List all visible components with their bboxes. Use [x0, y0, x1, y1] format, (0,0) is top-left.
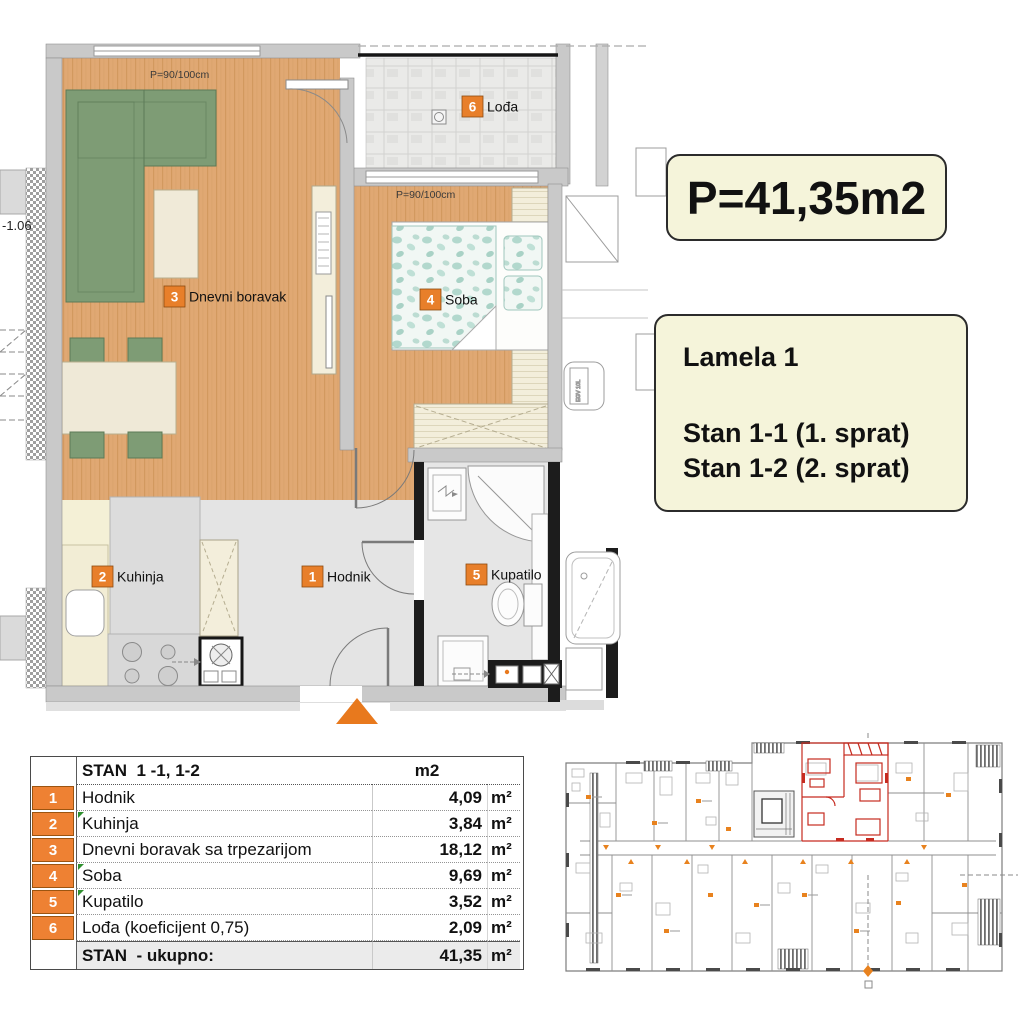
heater-label: EGV 10L: [576, 380, 582, 402]
pillow: [504, 276, 542, 310]
total-unit: m²: [487, 941, 520, 969]
row-value: 18,12: [372, 837, 487, 863]
row-name: Soba: [76, 863, 372, 889]
room-badge-kuhinja: 2 Kuhinja: [92, 566, 164, 587]
row-value: 3,84: [372, 811, 487, 837]
building-label: Lamela 1: [683, 342, 966, 373]
stair-core: [754, 791, 794, 837]
neighbor-bathtub: [566, 552, 620, 644]
dresser: [414, 404, 548, 450]
row-unit: m²: [487, 785, 520, 811]
pantry-cabinet: [200, 540, 238, 636]
row-badge: 3: [31, 837, 76, 863]
room-label: Kuhinja: [117, 569, 164, 585]
svg-text:5: 5: [473, 568, 481, 583]
row-name: Lođa (koeficijent 0,75): [76, 915, 372, 941]
svg-text:4: 4: [427, 293, 435, 308]
dining-chair: [128, 432, 162, 458]
kitchen-counter-block: [110, 497, 200, 634]
overview-plan: [556, 733, 1024, 1023]
room-badge-hodnik: 1 Hodnik: [302, 566, 372, 587]
site-context-left: -1.06: [0, 168, 46, 688]
room-badge-lodja: 6 Lođa: [462, 96, 518, 117]
floor-plan: -1.06: [0, 0, 670, 745]
bedroom-entry-floor: [354, 448, 414, 500]
coffee-table: [154, 190, 198, 278]
row-badge: 4: [31, 863, 76, 889]
table-header-badge: [31, 757, 76, 785]
row-badge: 1: [31, 785, 76, 811]
row-unit: m²: [487, 811, 520, 837]
tv-cabinet: [312, 186, 336, 374]
room-label: Kupatilo: [491, 567, 542, 583]
dining-chair: [128, 338, 162, 364]
total-area-label: P=41,35m2: [687, 171, 926, 225]
svg-text:1: 1: [309, 570, 317, 585]
room-badge-soba: 4 Soba: [420, 289, 478, 310]
unit-label-1: Stan 1-1 (1. sprat): [683, 416, 966, 451]
row-name: Hodnik: [76, 785, 372, 811]
room-badge-dnevni-boravak: 3 Dnevni boravak: [164, 286, 287, 307]
row-value: 2,09: [372, 915, 487, 941]
row-badge: 2: [31, 811, 76, 837]
overview-building: [566, 733, 1018, 988]
area-box: P=41,35m2: [666, 154, 947, 241]
row-value: 9,69: [372, 863, 487, 889]
svg-text:6: 6: [469, 100, 477, 115]
row-badge: 5: [31, 889, 76, 915]
row-unit: m²: [487, 863, 520, 889]
total-label: STAN - ukupno:: [76, 941, 372, 969]
row-unit: m²: [487, 889, 520, 915]
row-unit: m²: [487, 837, 520, 863]
washing-machine: [438, 636, 488, 686]
neighbor-sink: [566, 648, 602, 690]
table-header-title: STAN 1 -1, 1-2: [76, 757, 372, 785]
water-heater: EGV 10L: [564, 362, 604, 410]
dining-chair: [70, 338, 104, 364]
bath-sink: [428, 468, 466, 520]
total-value: 41,35: [372, 941, 487, 969]
row-name: Kuhinja: [76, 811, 372, 837]
dining-chair: [70, 432, 104, 458]
room-label: Dnevni boravak: [189, 289, 287, 305]
page: -1.06: [0, 0, 1024, 1024]
room-label: Soba: [445, 292, 478, 308]
dining-table: [62, 362, 176, 434]
window-label: P=90/100cm: [396, 189, 456, 201]
row-value: 4,09: [372, 785, 487, 811]
area-table: STAN 1 -1, 1-2 m2 1 Hodnik 4,09 m² 2 Kuh…: [30, 756, 524, 970]
room-label: Hodnik: [327, 569, 372, 585]
table-header-unit: m2: [372, 757, 487, 785]
room-badge-kupatilo: 5 Kupatilo: [466, 564, 542, 585]
svg-text:3: 3: [171, 290, 179, 305]
window-label: P=90/100cm: [150, 69, 210, 81]
room-label: Lođa: [487, 99, 518, 115]
pillow: [504, 236, 542, 270]
kitchen-sink: [66, 590, 104, 636]
svg-text:2: 2: [99, 570, 107, 585]
level-label: -1.06: [2, 218, 32, 233]
row-value: 3,52: [372, 889, 487, 915]
row-name: Dnevni boravak sa trpezarijom: [76, 837, 372, 863]
unit-label-2: Stan 1-2 (2. sprat): [683, 451, 966, 486]
building-box: Lamela 1 Stan 1-1 (1. sprat) Stan 1-2 (2…: [654, 314, 968, 512]
row-name: Kupatilo: [76, 889, 372, 915]
stove-counter: [108, 634, 200, 686]
toilet: [492, 582, 542, 626]
neighbor-unit: EGV 10L: [560, 148, 666, 710]
loggia-floor: [366, 58, 556, 168]
loggia-drain: [432, 110, 446, 124]
row-badge: 6: [31, 915, 76, 941]
tv: [326, 296, 332, 368]
bedroom-furniture: [392, 188, 548, 450]
row-unit: m²: [487, 915, 520, 941]
